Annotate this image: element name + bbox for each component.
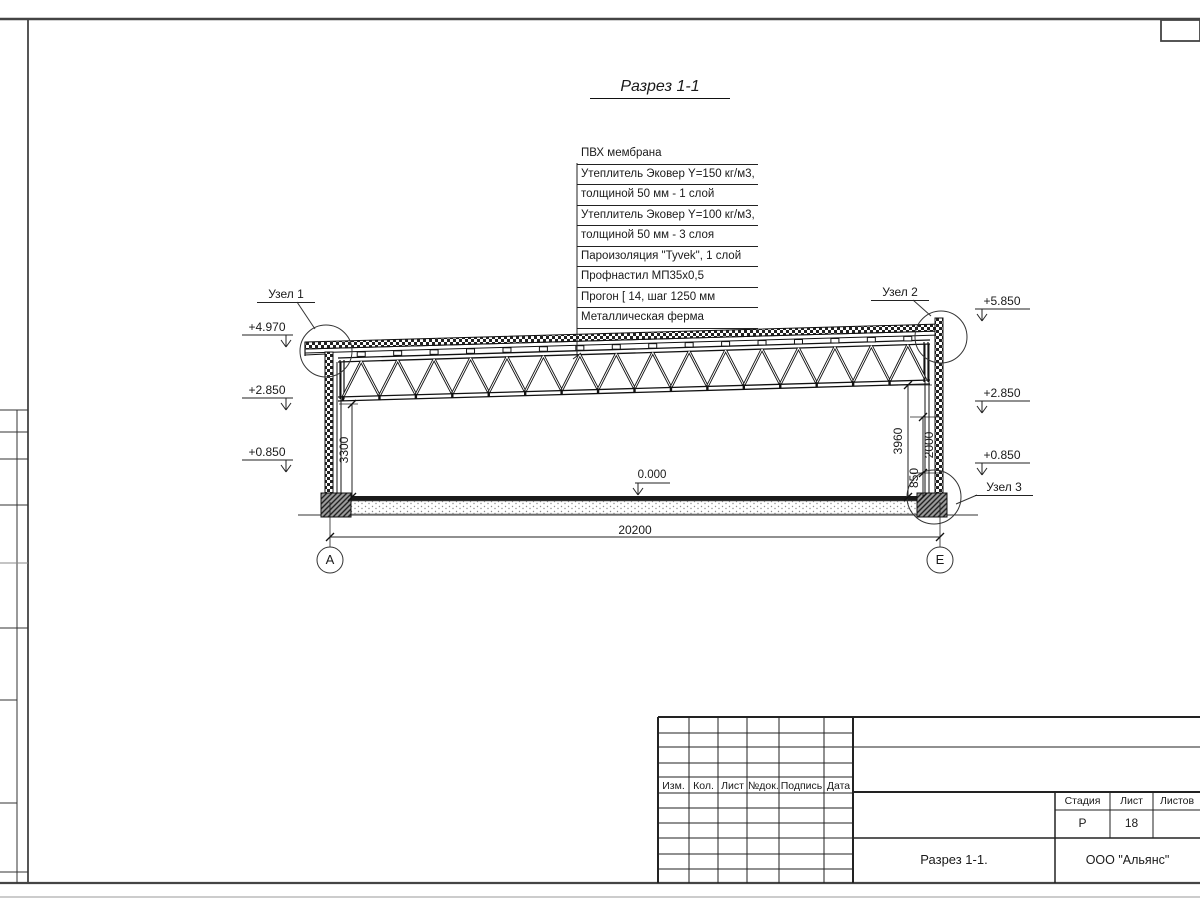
titleblock-company: ООО "Альянс" xyxy=(1057,853,1198,867)
titleblock-sheet-value: 18 xyxy=(1111,816,1152,830)
callout-line: Пароизоляция "Tyvek", 1 слой xyxy=(577,247,758,268)
grid-axis-circles xyxy=(317,547,953,573)
dimension-right-height: 3960 xyxy=(891,411,905,471)
detail-label-node3: Узел 3 xyxy=(975,480,1033,496)
left-margin-stamp xyxy=(0,410,28,883)
dimension-span: 20200 xyxy=(605,523,665,537)
page-title: Разрез 1-1 xyxy=(590,78,730,99)
dimension-ticks xyxy=(326,381,944,541)
titleblock-stage-label: Стадия xyxy=(1056,795,1109,807)
callout-line: Утеплитель Эковер Y=100 кг/м3, xyxy=(577,206,758,227)
grid-axis-a: А xyxy=(318,552,342,567)
callout-line: толщиной 50 мм - 1 слой xyxy=(577,185,758,206)
titleblock-drawing-title: Разрез 1-1. xyxy=(855,852,1053,867)
dimension-left-height: 3300 xyxy=(337,420,351,480)
callout-line: толщиной 50 мм - 3 слоя xyxy=(577,226,758,247)
titleblock-sheets-label: Листов xyxy=(1154,795,1200,807)
grid-axis-e: Е xyxy=(928,552,952,567)
detail-label-node1: Узел 1 xyxy=(257,287,315,303)
titleblock-stage-value: Р xyxy=(1056,816,1109,830)
material-callout: ПВХ мембрана Утеплитель Эковер Y=150 кг/… xyxy=(577,144,758,329)
callout-line: Металлическая ферма xyxy=(577,308,758,329)
titleblock-col-kol: Кол. xyxy=(690,780,717,792)
titleblock-col-izm: Изм. xyxy=(659,780,688,792)
titleblock-col-podpis: Подпись xyxy=(780,780,823,792)
titleblock-sheet-label: Лист xyxy=(1111,795,1152,807)
dimension-lower: 850 xyxy=(907,448,921,508)
titleblock-col-list: Лист xyxy=(719,780,746,792)
callout-line: ПВХ мембрана xyxy=(577,144,758,165)
titleblock-col-data: Дата xyxy=(825,780,852,792)
drawing-sheet: Разрез 1-1 ПВХ мембрана Утеплитель Экове… xyxy=(0,0,1200,900)
elevation-left-low: +0.850 xyxy=(239,445,295,459)
elevation-right-top: +5.850 xyxy=(974,294,1030,308)
floor-slab xyxy=(298,496,978,515)
dimension-upper: 2000 xyxy=(922,415,936,475)
elevation-right-mid: +2.850 xyxy=(974,386,1030,400)
elevation-left-top: +4.970 xyxy=(239,320,295,334)
callout-line: Профнастил МП35х0,5 xyxy=(577,267,758,288)
elevation-left-mid: +2.850 xyxy=(239,383,295,397)
callout-line: Прогон [ 14, шаг 1250 мм xyxy=(577,288,758,309)
titleblock-col-ndok: №док. xyxy=(748,780,778,792)
elevation-right-low: +0.850 xyxy=(974,448,1030,462)
elevation-floor: 0.000 xyxy=(630,469,674,481)
detail-label-node2: Узел 2 xyxy=(871,285,929,301)
callout-line: Утеплитель Эковер Y=150 кг/м3, xyxy=(577,165,758,186)
